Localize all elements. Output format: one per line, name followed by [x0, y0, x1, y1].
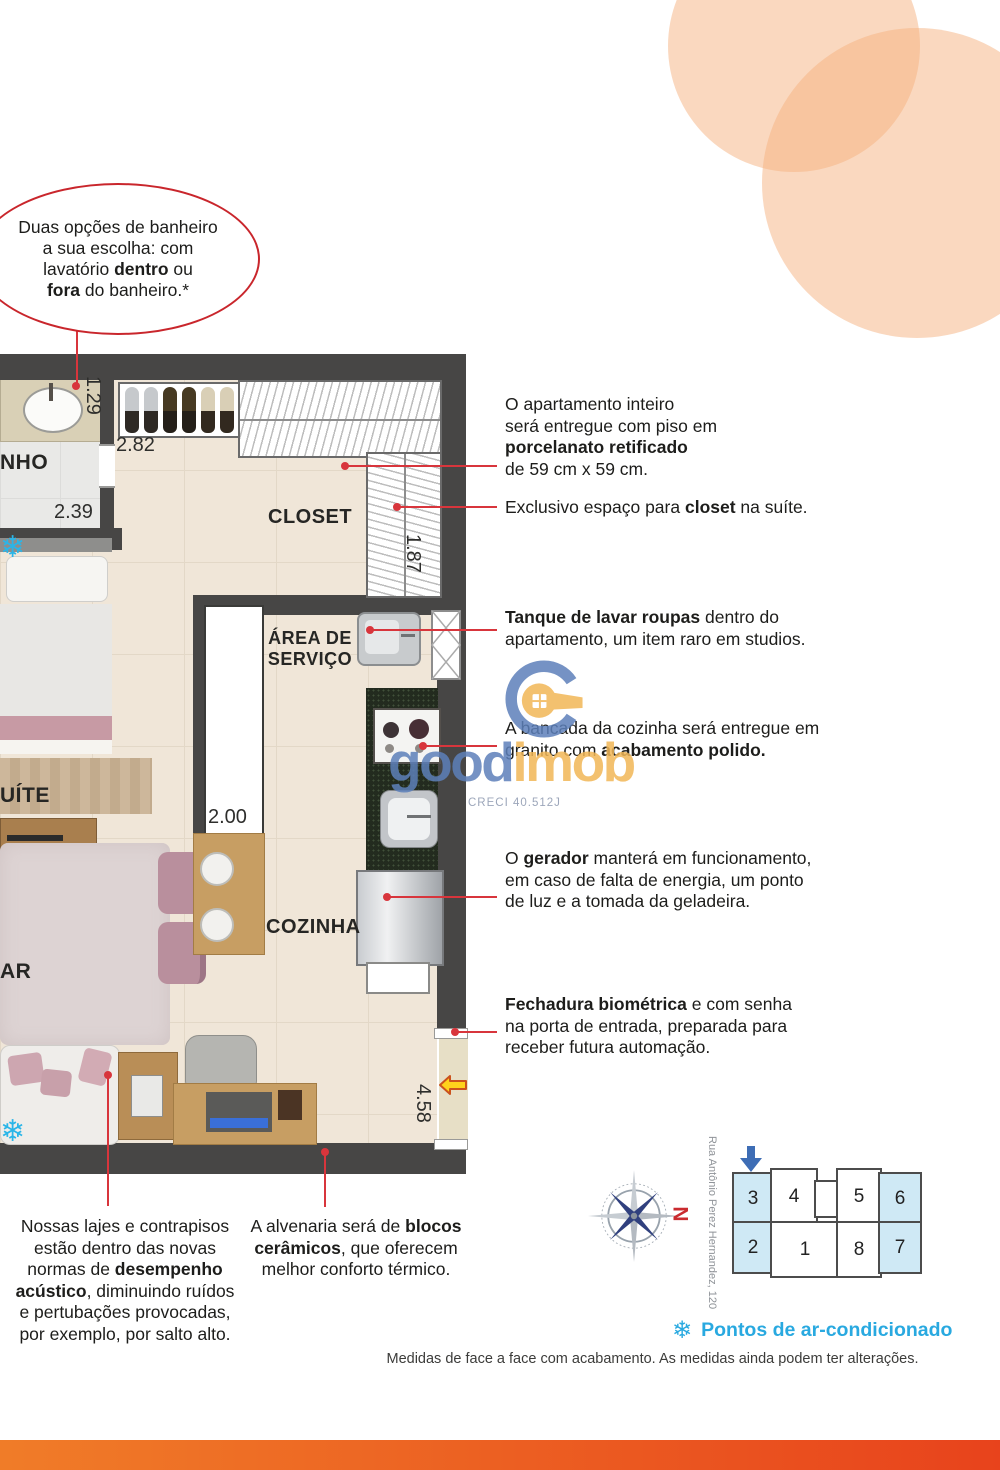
annotation-gerador: O gerador manterá em funcionamento, em c…: [505, 848, 845, 913]
keyplan-unit-2: 2: [732, 1221, 774, 1274]
dim-1-87: 1.87: [401, 534, 424, 573]
sofa-pillow: [7, 1052, 45, 1086]
speech-bubble-text: Duas opções de banheiro a sua escolha: c…: [11, 217, 226, 301]
desk-chair: [185, 1035, 257, 1089]
room-label-closet: CLOSET: [268, 506, 352, 529]
notebook-icon: [278, 1090, 302, 1120]
keyplan-unit-7: 7: [878, 1221, 922, 1274]
rug: [0, 843, 170, 1045]
annotation-fechadura: Fechadura biométrica e com senha na port…: [505, 994, 835, 1059]
annotation-porcelanato: O apartamento inteiro será entregue com …: [505, 394, 755, 480]
tv-icon: [7, 835, 63, 841]
wall-top: [0, 354, 463, 380]
north-label: N: [668, 1206, 692, 1221]
logo-imob: imob: [512, 731, 633, 793]
shoe-icon: [125, 387, 139, 433]
closet-hanger-rail-side: [366, 452, 442, 598]
keyplan-unit-3: 3: [732, 1172, 774, 1225]
bed-throw: [0, 716, 112, 740]
annotation-closet: Exclusivo espaço para closet na suíte.: [505, 497, 835, 519]
closet-rod: [240, 419, 440, 421]
book-icon: [131, 1075, 163, 1117]
shoe-icon: [144, 387, 158, 433]
leader-line: [324, 1155, 326, 1207]
closet-rod: [404, 454, 406, 596]
dim-2-00: 2.00: [208, 806, 247, 829]
duvet: [0, 604, 112, 716]
logo-key-icon: [503, 658, 585, 740]
annotation-lajes: Nossas lajes e contrapisos estão dentro …: [5, 1216, 245, 1345]
compass-icon: [588, 1170, 680, 1262]
closet-hanger-rail-top: [238, 380, 442, 458]
desk: [173, 1083, 317, 1145]
keyplan-unit-1: 1: [770, 1221, 840, 1278]
bed-lace: [0, 740, 112, 754]
shoe-icon: [201, 387, 215, 433]
fridge: [356, 870, 444, 966]
keyplan-unit-5: 5: [836, 1168, 882, 1225]
shoe-icon: [182, 387, 196, 433]
keyplan-unit-6: 6: [878, 1172, 922, 1225]
goodimob-logo: goodimob CRECI 40.512J: [388, 658, 658, 823]
sofa-pillow: [40, 1069, 73, 1098]
dim-4-58: 4.58: [411, 1084, 434, 1123]
leader-dot: [72, 382, 80, 390]
room-label-cozinha: COZINHA: [266, 916, 361, 939]
leader-line: [373, 629, 497, 631]
laptop-icon: [206, 1092, 272, 1132]
shoe-shelf: [118, 382, 240, 438]
annotation-tanque: Tanque de lavar roupas dentro do apartam…: [505, 607, 845, 650]
snowflake-icon: ❄: [0, 530, 25, 565]
footer-bar: [0, 1440, 1000, 1470]
room-label-servico: ÁREA DE SERVIÇO: [250, 628, 370, 670]
side-table: [118, 1052, 178, 1140]
wall-bottom: [0, 1143, 466, 1174]
leader-line: [348, 465, 497, 467]
speech-bubble: Duas opções de banheiro a sua escolha: c…: [0, 183, 260, 335]
logo-wordmark: goodimob: [388, 732, 634, 792]
dining-table: [193, 833, 265, 955]
dim-1-29: 1.29: [81, 376, 104, 415]
kitchen-counter-white: [366, 962, 430, 994]
keyplan-unit-8: 8: [836, 1221, 882, 1278]
dim-2-39: 2.39: [54, 501, 93, 524]
plate-icon: [200, 908, 234, 942]
room-label-suite: UÍTE: [0, 784, 50, 808]
leader-line: [400, 506, 497, 508]
logo-creci: CRECI 40.512J: [468, 797, 561, 809]
tank-faucet-icon: [401, 634, 415, 637]
leader-line: [107, 1078, 109, 1206]
logo-good: good: [388, 731, 512, 793]
shoe-icon: [163, 387, 177, 433]
street-label: Rua Antônio Perez Hernandez, 120: [706, 1136, 718, 1309]
snowflake-icon: ❄: [672, 1316, 692, 1344]
annotation-alvenaria: A alvenaria será de blocos cerâmicos, qu…: [246, 1216, 466, 1281]
entrance-arrow-icon: [438, 1074, 468, 1096]
snowflake-icon: ❄: [0, 1114, 25, 1149]
flyer-page: ❄ ❄ NHO CLOSET ÁREA DE SERVIÇO COZINHA U…: [0, 0, 1000, 1470]
faucet-icon: [49, 383, 53, 401]
disclaimer-text: Medidas de face a face com acabamento. A…: [385, 1351, 920, 1367]
room-label-estar: AR: [0, 960, 31, 984]
bathroom-door-opening: [99, 444, 115, 488]
leader-line: [458, 1031, 497, 1033]
room-label-banho: NHO: [0, 451, 48, 475]
entrance-frame: [434, 1139, 468, 1150]
dim-2-82: 2.82: [116, 434, 155, 457]
leader-line: [390, 896, 497, 898]
bathroom-sink: [23, 387, 83, 433]
ac-legend: ❄ Pontos de ar-condicionado: [672, 1316, 952, 1344]
shoe-icon: [220, 387, 234, 433]
keyplan-unit-4: 4: [770, 1168, 818, 1225]
plate-icon: [200, 852, 234, 886]
bed: [0, 538, 112, 758]
ac-legend-label: Pontos de ar-condicionado: [701, 1319, 952, 1342]
